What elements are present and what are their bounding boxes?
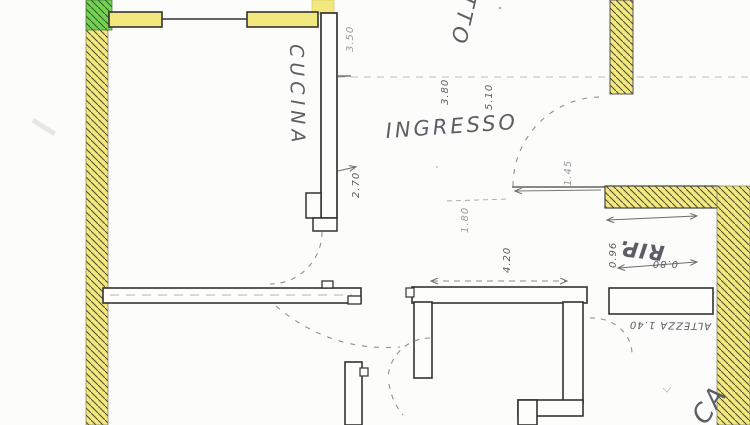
top-right-wall-stub	[610, 0, 633, 94]
note-altezza: ALTEZZA 1.40	[629, 319, 711, 330]
kitchen-window-wall	[109, 0, 334, 27]
lower-left-door-arc	[276, 306, 400, 347]
floor-plan: CUCINA INGRESSO TTO RIP. CA 3.80 5.10 3.…	[0, 0, 750, 425]
room-label-cucina: CUCINA	[286, 44, 307, 148]
bathroom-dimension-line	[432, 199, 566, 281]
left-exterior-wall	[86, 24, 108, 425]
dim-2-70: 2.70	[352, 172, 362, 198]
living-room-door-arc	[513, 97, 601, 186]
hall-opening	[512, 187, 607, 191]
storage-corridor-wall	[605, 186, 718, 208]
dim-0-80: 0.80	[652, 258, 678, 268]
dim-5-10: 5.10	[485, 84, 495, 110]
storage-cabinet	[609, 288, 713, 314]
dim-3-80: 3.80	[441, 79, 451, 105]
lower-short-wall	[345, 362, 368, 425]
floorplan-drawing	[0, 0, 750, 425]
dim-1-45: 1.45	[564, 160, 574, 186]
dim-3-50: 3.50	[346, 26, 356, 52]
dim-1-80: 1.80	[461, 207, 471, 233]
kitchen-door-arc	[270, 232, 322, 284]
dim-0-96: 0.96	[609, 242, 619, 268]
bathroom-walls	[406, 287, 587, 425]
bottom-left-wall	[103, 281, 361, 304]
dim-4-20: 4.20	[503, 247, 513, 273]
green-corner-wall	[86, 0, 112, 30]
